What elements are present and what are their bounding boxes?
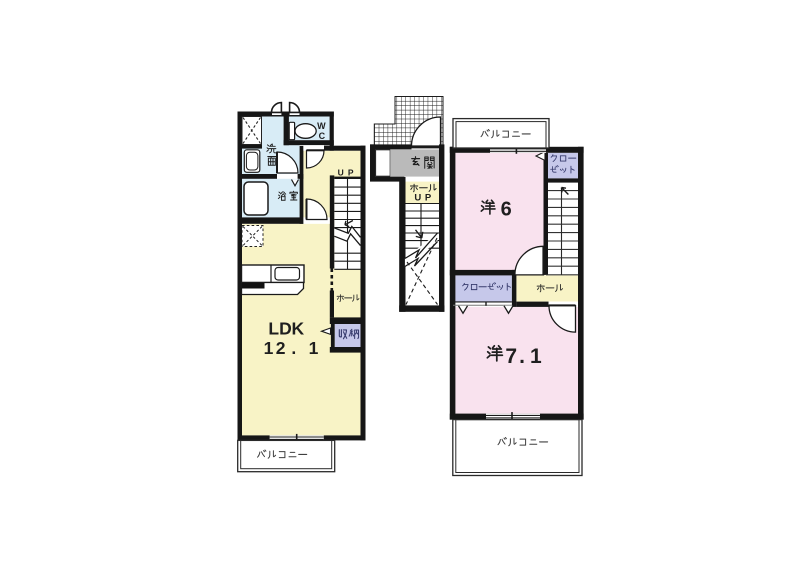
svg-text:7.1: 7.1	[505, 345, 542, 368]
svg-text:LDK: LDK	[268, 318, 304, 338]
svg-text:12.1: 12.1	[264, 338, 319, 358]
svg-text:C: C	[319, 131, 326, 141]
svg-text:6: 6	[501, 198, 512, 220]
svg-text:W: W	[317, 121, 326, 131]
